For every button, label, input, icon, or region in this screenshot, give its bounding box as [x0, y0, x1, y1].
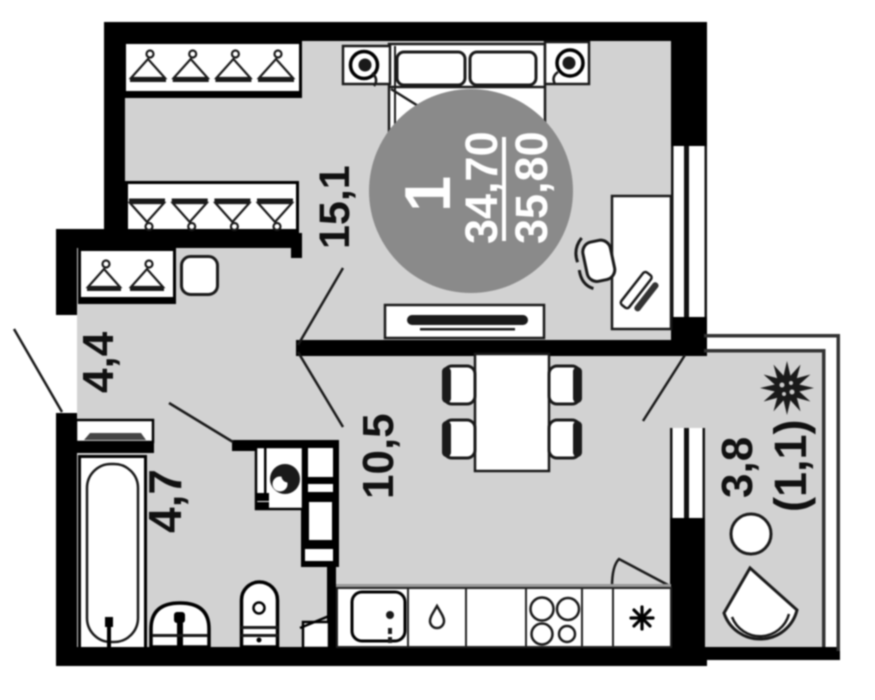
svg-text:35,80: 35,80 [506, 131, 557, 244]
svg-text:3,8: 3,8 [713, 437, 762, 498]
svg-text:15,1: 15,1 [311, 165, 359, 249]
svg-text:4,4: 4,4 [74, 331, 123, 393]
svg-text:1: 1 [391, 176, 464, 212]
svg-text:10,5: 10,5 [354, 413, 403, 499]
svg-text:4,7: 4,7 [139, 469, 191, 533]
svg-text:(1,1): (1,1) [765, 419, 816, 512]
svg-text:34,70: 34,70 [456, 131, 507, 244]
